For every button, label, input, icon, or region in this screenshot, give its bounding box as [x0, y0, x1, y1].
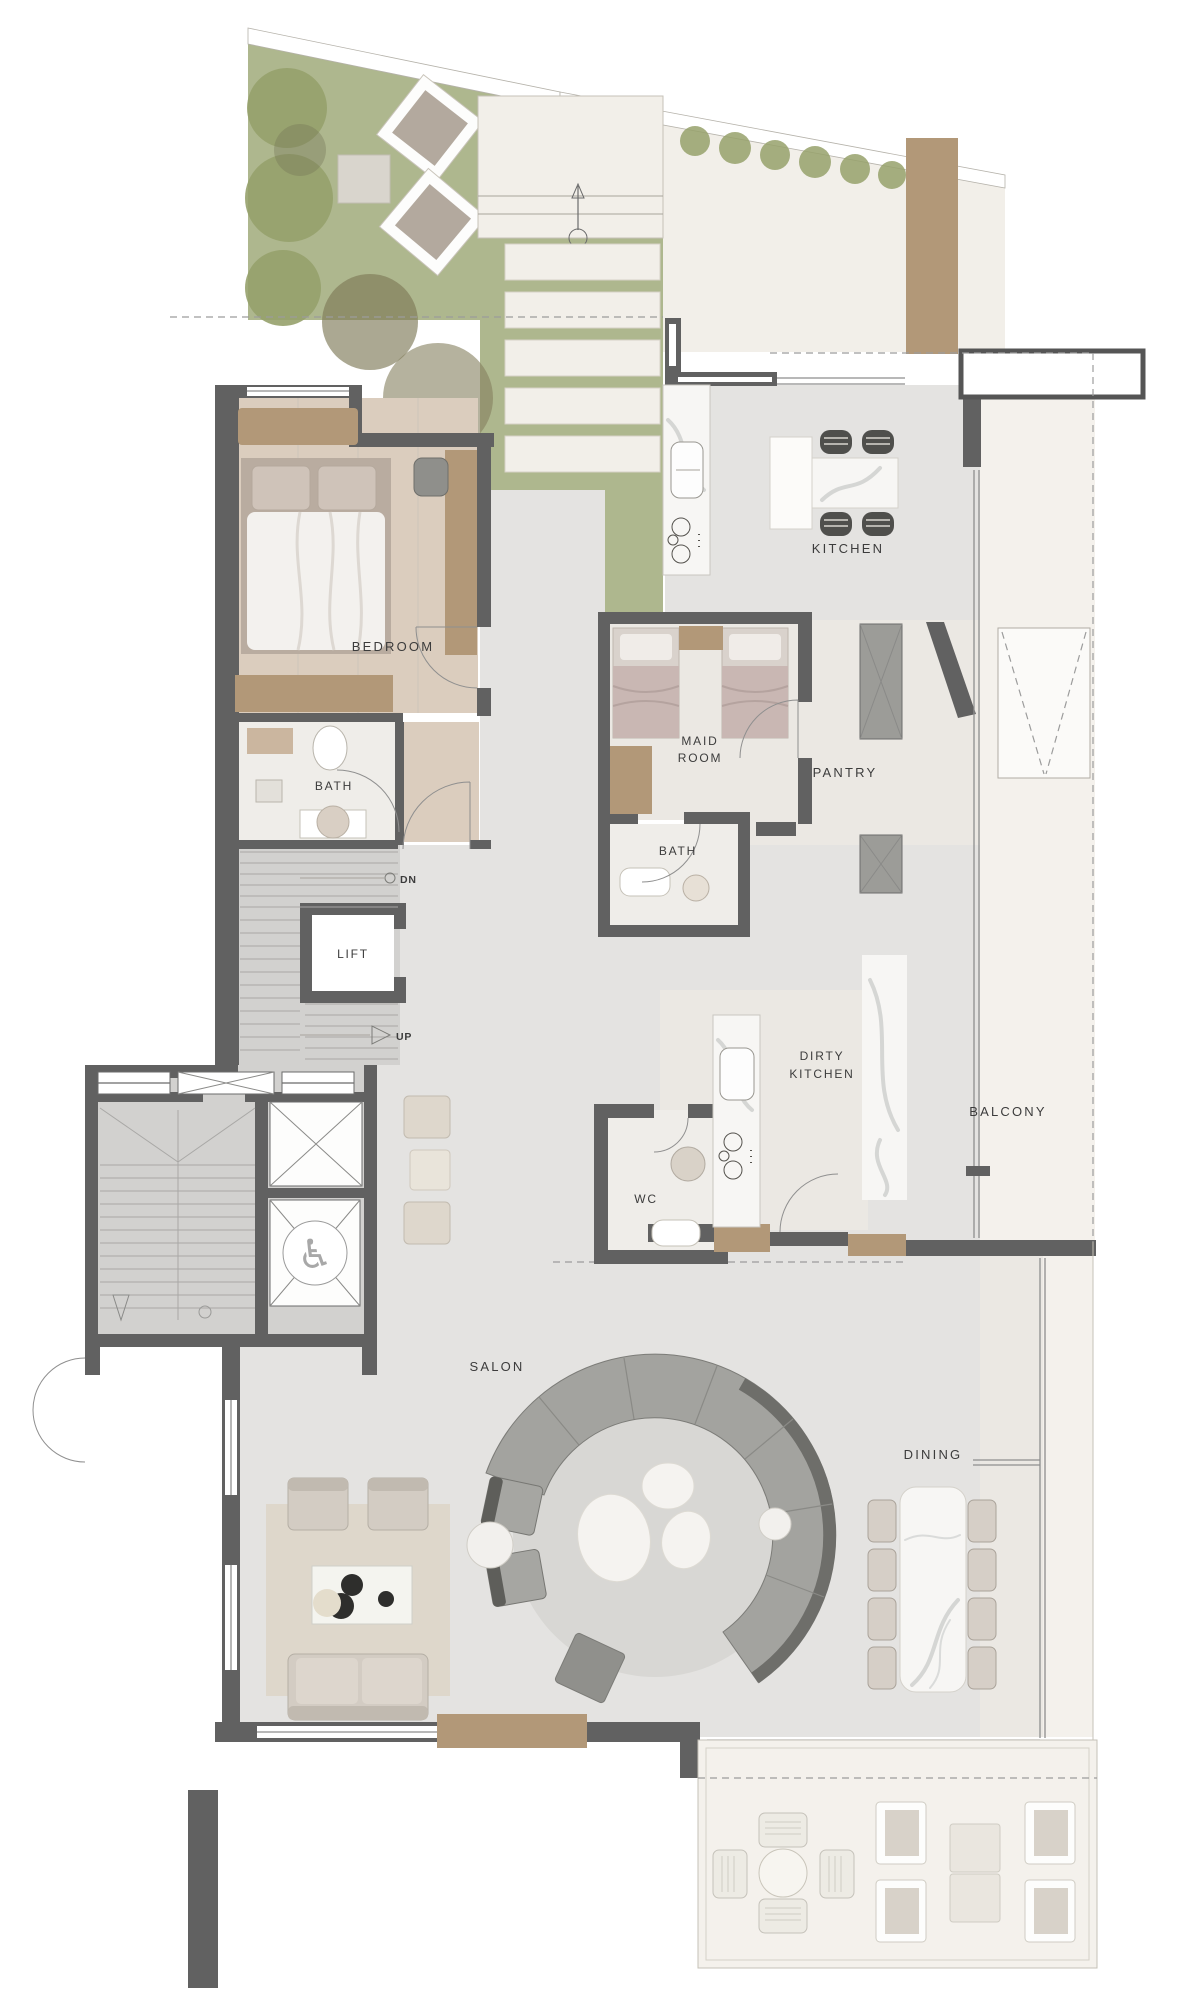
- wall-maidbath-south: [598, 925, 750, 937]
- label-pantry: PANTRY: [813, 765, 878, 780]
- wood-console: [437, 1714, 587, 1748]
- label-dirty-kitchen-1: DIRTY: [800, 1049, 845, 1063]
- wall-balcony-south: [906, 1240, 1096, 1256]
- outer-strip-floor: [1043, 1256, 1093, 1737]
- floor-plan-drawing: ♿: [0, 0, 1177, 2000]
- label-dining: DINING: [904, 1447, 963, 1462]
- chair: [759, 1899, 807, 1933]
- wall-maid-east: [798, 612, 812, 702]
- wall-wc-south: [594, 1250, 728, 1264]
- shrub: [719, 132, 751, 164]
- closet-bench: [235, 675, 393, 712]
- door-arc-entry: [33, 1358, 85, 1462]
- wall-bath-south: [238, 840, 398, 849]
- side-table-round: [759, 1508, 791, 1540]
- sofa-cushion: [296, 1658, 358, 1704]
- label-lift: LIFT: [337, 947, 369, 961]
- step-slab: [505, 292, 660, 328]
- headboard-bench: [238, 408, 358, 445]
- sliding-door-handle: [966, 1166, 990, 1176]
- hall-seating: [404, 1096, 450, 1244]
- wall-west-spine: [215, 385, 239, 1065]
- dining-table: [900, 1487, 966, 1692]
- island-cabinet: [770, 437, 812, 529]
- chair: [968, 1500, 996, 1542]
- armchair-back: [368, 1478, 428, 1491]
- wheelchair-icon: ♿: [297, 1232, 333, 1278]
- shower-drain: [256, 780, 282, 802]
- stair-core-wall: [268, 1188, 364, 1198]
- lounge-cushion: [1034, 1888, 1068, 1934]
- toilet: [313, 726, 347, 770]
- ottoman: [950, 1824, 1000, 1872]
- shrub: [878, 161, 906, 189]
- stepping-stones: [505, 244, 660, 472]
- lounge-cushion: [885, 1888, 919, 1934]
- stair-core-wall: [364, 1065, 377, 1347]
- step-slab: [505, 388, 660, 424]
- bedside-shelf: [679, 626, 723, 650]
- desk-unit: [445, 450, 477, 655]
- decor-bowl: [378, 1591, 394, 1607]
- void-box: [998, 628, 1090, 778]
- shrub: [680, 126, 710, 156]
- label-balcony: BALCONY: [969, 1104, 1047, 1119]
- label-dirty-kitchen-2: KITCHEN: [789, 1067, 854, 1081]
- wall-post: [362, 1347, 377, 1375]
- lift-wall: [300, 991, 406, 1003]
- pillow: [729, 634, 781, 660]
- decor-bowl: [341, 1574, 363, 1596]
- floor-plan-page: ♿: [0, 0, 1177, 2000]
- balcony-planter-box: [961, 351, 1143, 397]
- duvet: [247, 512, 385, 650]
- shrub: [799, 146, 831, 178]
- wc-basin: [671, 1147, 705, 1181]
- stair-core-wall: [85, 1334, 377, 1347]
- chair: [713, 1850, 747, 1898]
- wall-stub: [756, 822, 796, 836]
- wall-post: [85, 1347, 100, 1375]
- pillow: [620, 634, 672, 660]
- chair: [968, 1598, 996, 1640]
- label-maid-room-1: MAID: [681, 734, 718, 748]
- chair: [820, 512, 852, 536]
- step-slab: [505, 244, 660, 280]
- lift-wall: [300, 903, 406, 915]
- maid-wardrobe: [610, 746, 652, 814]
- chair: [820, 1850, 854, 1898]
- wood-sill: [848, 1234, 906, 1256]
- wall-wc-north: [594, 1104, 654, 1118]
- wall-core: [669, 324, 676, 366]
- coffee-table-blob: [642, 1463, 694, 1509]
- chair: [968, 1549, 996, 1591]
- desk-chair: [414, 458, 448, 496]
- shrub: [840, 154, 870, 184]
- lift-jamb: [394, 977, 406, 1003]
- side-table-round: [467, 1522, 513, 1568]
- chair: [759, 1813, 807, 1847]
- wall-maid-bath: [684, 812, 750, 824]
- bottom-terrace: [698, 1740, 1097, 1968]
- label-wc: WC: [634, 1192, 658, 1206]
- wall-maid-east: [798, 758, 812, 824]
- label-maid-room-2: ROOM: [678, 751, 723, 765]
- wall-maid-north: [598, 612, 810, 624]
- step-slab: [505, 340, 660, 376]
- dk-sink: [720, 1048, 754, 1100]
- sofa-cushion: [362, 1658, 422, 1704]
- wall-bath-east: [395, 722, 404, 845]
- ottoman: [950, 1874, 1000, 1922]
- wall-jamb: [470, 840, 491, 849]
- wall-south: [770, 1232, 848, 1246]
- decor-bowl: [313, 1589, 341, 1617]
- stair-core-wall: [255, 1100, 268, 1334]
- up-label: UP: [396, 1031, 412, 1043]
- stair-core-wall: [85, 1065, 98, 1347]
- tree: [245, 250, 321, 326]
- chair: [862, 512, 894, 536]
- wc-toilet: [652, 1220, 700, 1246]
- wall-step: [349, 433, 494, 447]
- tree-shadow: [274, 124, 326, 176]
- label-salon: SALON: [469, 1359, 524, 1374]
- dn-label: DN: [400, 874, 417, 886]
- bath-mat: [247, 728, 293, 754]
- wood-sill: [714, 1224, 770, 1252]
- wall-bath-north: [238, 713, 403, 722]
- step-slab: [505, 436, 660, 472]
- dk-counter: [713, 1015, 760, 1227]
- side-table: [410, 1150, 450, 1190]
- label-bedroom: BEDROOM: [352, 639, 435, 654]
- wall-wc-west: [594, 1104, 608, 1264]
- chair: [968, 1647, 996, 1689]
- drain-mat: [256, 780, 282, 802]
- label-kitchen: KITCHEN: [812, 541, 884, 556]
- wall-bedroom-east: [477, 688, 491, 716]
- wall-core: [678, 377, 772, 382]
- dining-furniture: [868, 1487, 996, 1692]
- lounge-cushion: [885, 1810, 919, 1856]
- chair: [862, 430, 894, 454]
- label-maid-bath: BATH: [659, 844, 697, 858]
- armchair: [404, 1202, 450, 1244]
- basin: [317, 806, 349, 838]
- wall-maidbath-east: [738, 824, 750, 937]
- armchair: [404, 1096, 450, 1138]
- chair: [820, 430, 852, 454]
- label-bedroom-bath: BATH: [315, 779, 353, 793]
- entry-landing: [478, 96, 663, 238]
- chair: [868, 1598, 896, 1640]
- wood-planter: [906, 138, 958, 354]
- chair: [868, 1549, 896, 1591]
- basin: [683, 875, 709, 901]
- wall-maid-west: [598, 612, 610, 937]
- chair: [868, 1500, 896, 1542]
- wall-south-salon: [585, 1722, 700, 1742]
- wall-fence: [188, 1790, 218, 1988]
- armchair-back: [288, 1478, 348, 1491]
- garden-pad: [338, 155, 390, 203]
- sofa-back: [288, 1706, 428, 1720]
- wall-bedroom-east: [477, 447, 491, 627]
- lift-wall: [300, 903, 312, 1003]
- outdoor-table: [759, 1849, 807, 1897]
- shrub: [760, 140, 790, 170]
- pillow: [318, 466, 376, 510]
- chair: [868, 1647, 896, 1689]
- lounge-cushion: [1034, 1810, 1068, 1856]
- pillow: [252, 466, 310, 510]
